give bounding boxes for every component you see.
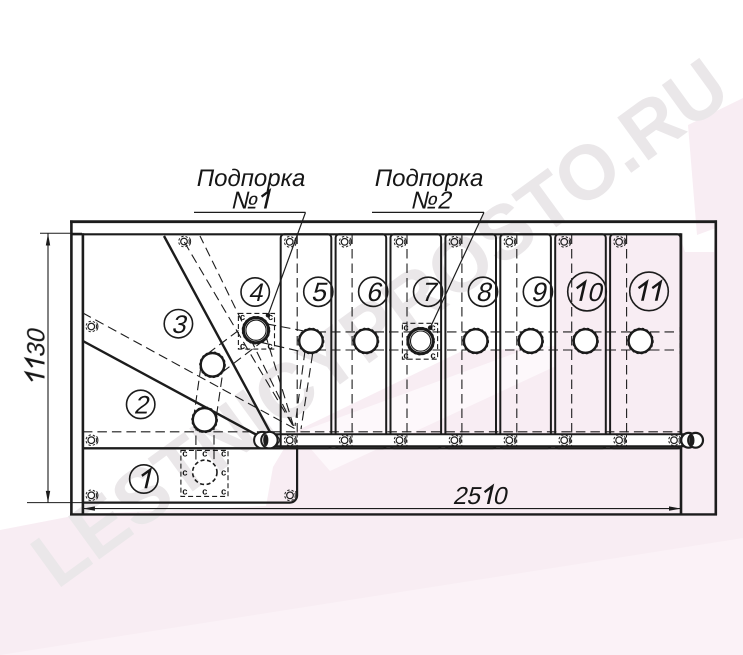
svg-text:c: c xyxy=(268,312,273,323)
svg-text:c: c xyxy=(221,468,226,479)
svg-text:c: c xyxy=(240,341,245,352)
svg-text:c: c xyxy=(182,449,187,460)
svg-text:c: c xyxy=(182,468,187,479)
svg-text:c: c xyxy=(403,351,408,362)
svg-text:c: c xyxy=(202,487,207,498)
svg-text:c: c xyxy=(202,449,207,460)
svg-text:c: c xyxy=(267,341,272,352)
svg-text:c: c xyxy=(430,351,435,362)
svg-text:c: c xyxy=(403,323,408,334)
svg-text:c: c xyxy=(182,487,187,498)
svg-text:c: c xyxy=(430,323,435,334)
svg-text:c: c xyxy=(240,312,245,323)
svg-text:№2: №2 xyxy=(409,188,456,215)
svg-text:c: c xyxy=(221,487,226,498)
svg-text:c: c xyxy=(221,449,226,460)
